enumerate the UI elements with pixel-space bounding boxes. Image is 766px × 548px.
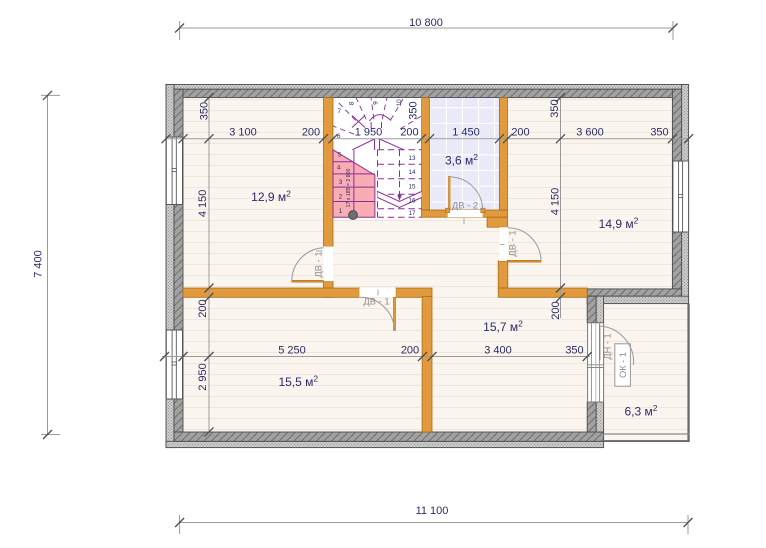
svg-text:350: 350 — [199, 102, 211, 120]
svg-text:12,9 м2: 12,9 м2 — [251, 189, 291, 205]
svg-text:1 950: 1 950 — [355, 127, 383, 139]
svg-text:2 950: 2 950 — [197, 363, 209, 391]
svg-text:15,7 м2: 15,7 м2 — [483, 319, 523, 335]
svg-text:2: 2 — [339, 194, 343, 201]
svg-text:10 800: 10 800 — [409, 17, 443, 29]
svg-text:14,9 м2: 14,9 м2 — [599, 216, 639, 232]
svg-text:3 600: 3 600 — [576, 127, 604, 139]
svg-text:3 400: 3 400 — [484, 344, 512, 356]
svg-text:ОК - 1: ОК - 1 — [618, 352, 628, 378]
svg-text:15: 15 — [408, 184, 416, 191]
svg-text:4 150: 4 150 — [197, 190, 209, 218]
svg-text:200: 200 — [401, 344, 419, 356]
svg-text:ДВ - 1: ДВ - 1 — [313, 251, 324, 277]
svg-text:11 100: 11 100 — [416, 505, 449, 517]
svg-text:17: 17 — [408, 210, 416, 217]
svg-text:350: 350 — [549, 99, 561, 117]
svg-text:17 x 185 = 2 800: 17 x 185 = 2 800 — [346, 168, 352, 207]
svg-text:5: 5 — [338, 152, 342, 159]
svg-text:ДВ - 1: ДВ - 1 — [507, 230, 518, 256]
svg-text:200: 200 — [400, 127, 418, 139]
svg-text:7: 7 — [338, 108, 342, 115]
svg-text:200: 200 — [511, 127, 529, 139]
svg-text:3 100: 3 100 — [229, 127, 257, 139]
svg-text:4 150: 4 150 — [550, 188, 562, 216]
svg-text:ДН - 1: ДН - 1 — [603, 333, 613, 359]
svg-text:350: 350 — [650, 127, 668, 139]
svg-text:200: 200 — [550, 301, 562, 319]
svg-text:5 250: 5 250 — [278, 344, 306, 356]
svg-text:4: 4 — [337, 165, 341, 172]
svg-text:8: 8 — [348, 101, 355, 105]
svg-text:200: 200 — [302, 127, 320, 139]
svg-text:1 450: 1 450 — [452, 127, 480, 139]
svg-text:350: 350 — [408, 101, 420, 119]
svg-text:10: 10 — [396, 99, 403, 107]
svg-text:ДВ - 2: ДВ - 2 — [452, 200, 478, 211]
svg-text:7 400: 7 400 — [33, 250, 45, 278]
svg-text:14: 14 — [408, 169, 416, 176]
svg-text:ДВ - 1: ДВ - 1 — [363, 296, 389, 307]
svg-text:1: 1 — [339, 208, 343, 215]
svg-text:13: 13 — [408, 155, 416, 162]
svg-text:200: 200 — [197, 299, 209, 317]
svg-text:350: 350 — [565, 344, 583, 356]
svg-text:9: 9 — [372, 101, 379, 105]
svg-text:3: 3 — [339, 179, 343, 186]
svg-text:15,5 м2: 15,5 м2 — [278, 373, 318, 389]
svg-text:16: 16 — [408, 198, 416, 205]
